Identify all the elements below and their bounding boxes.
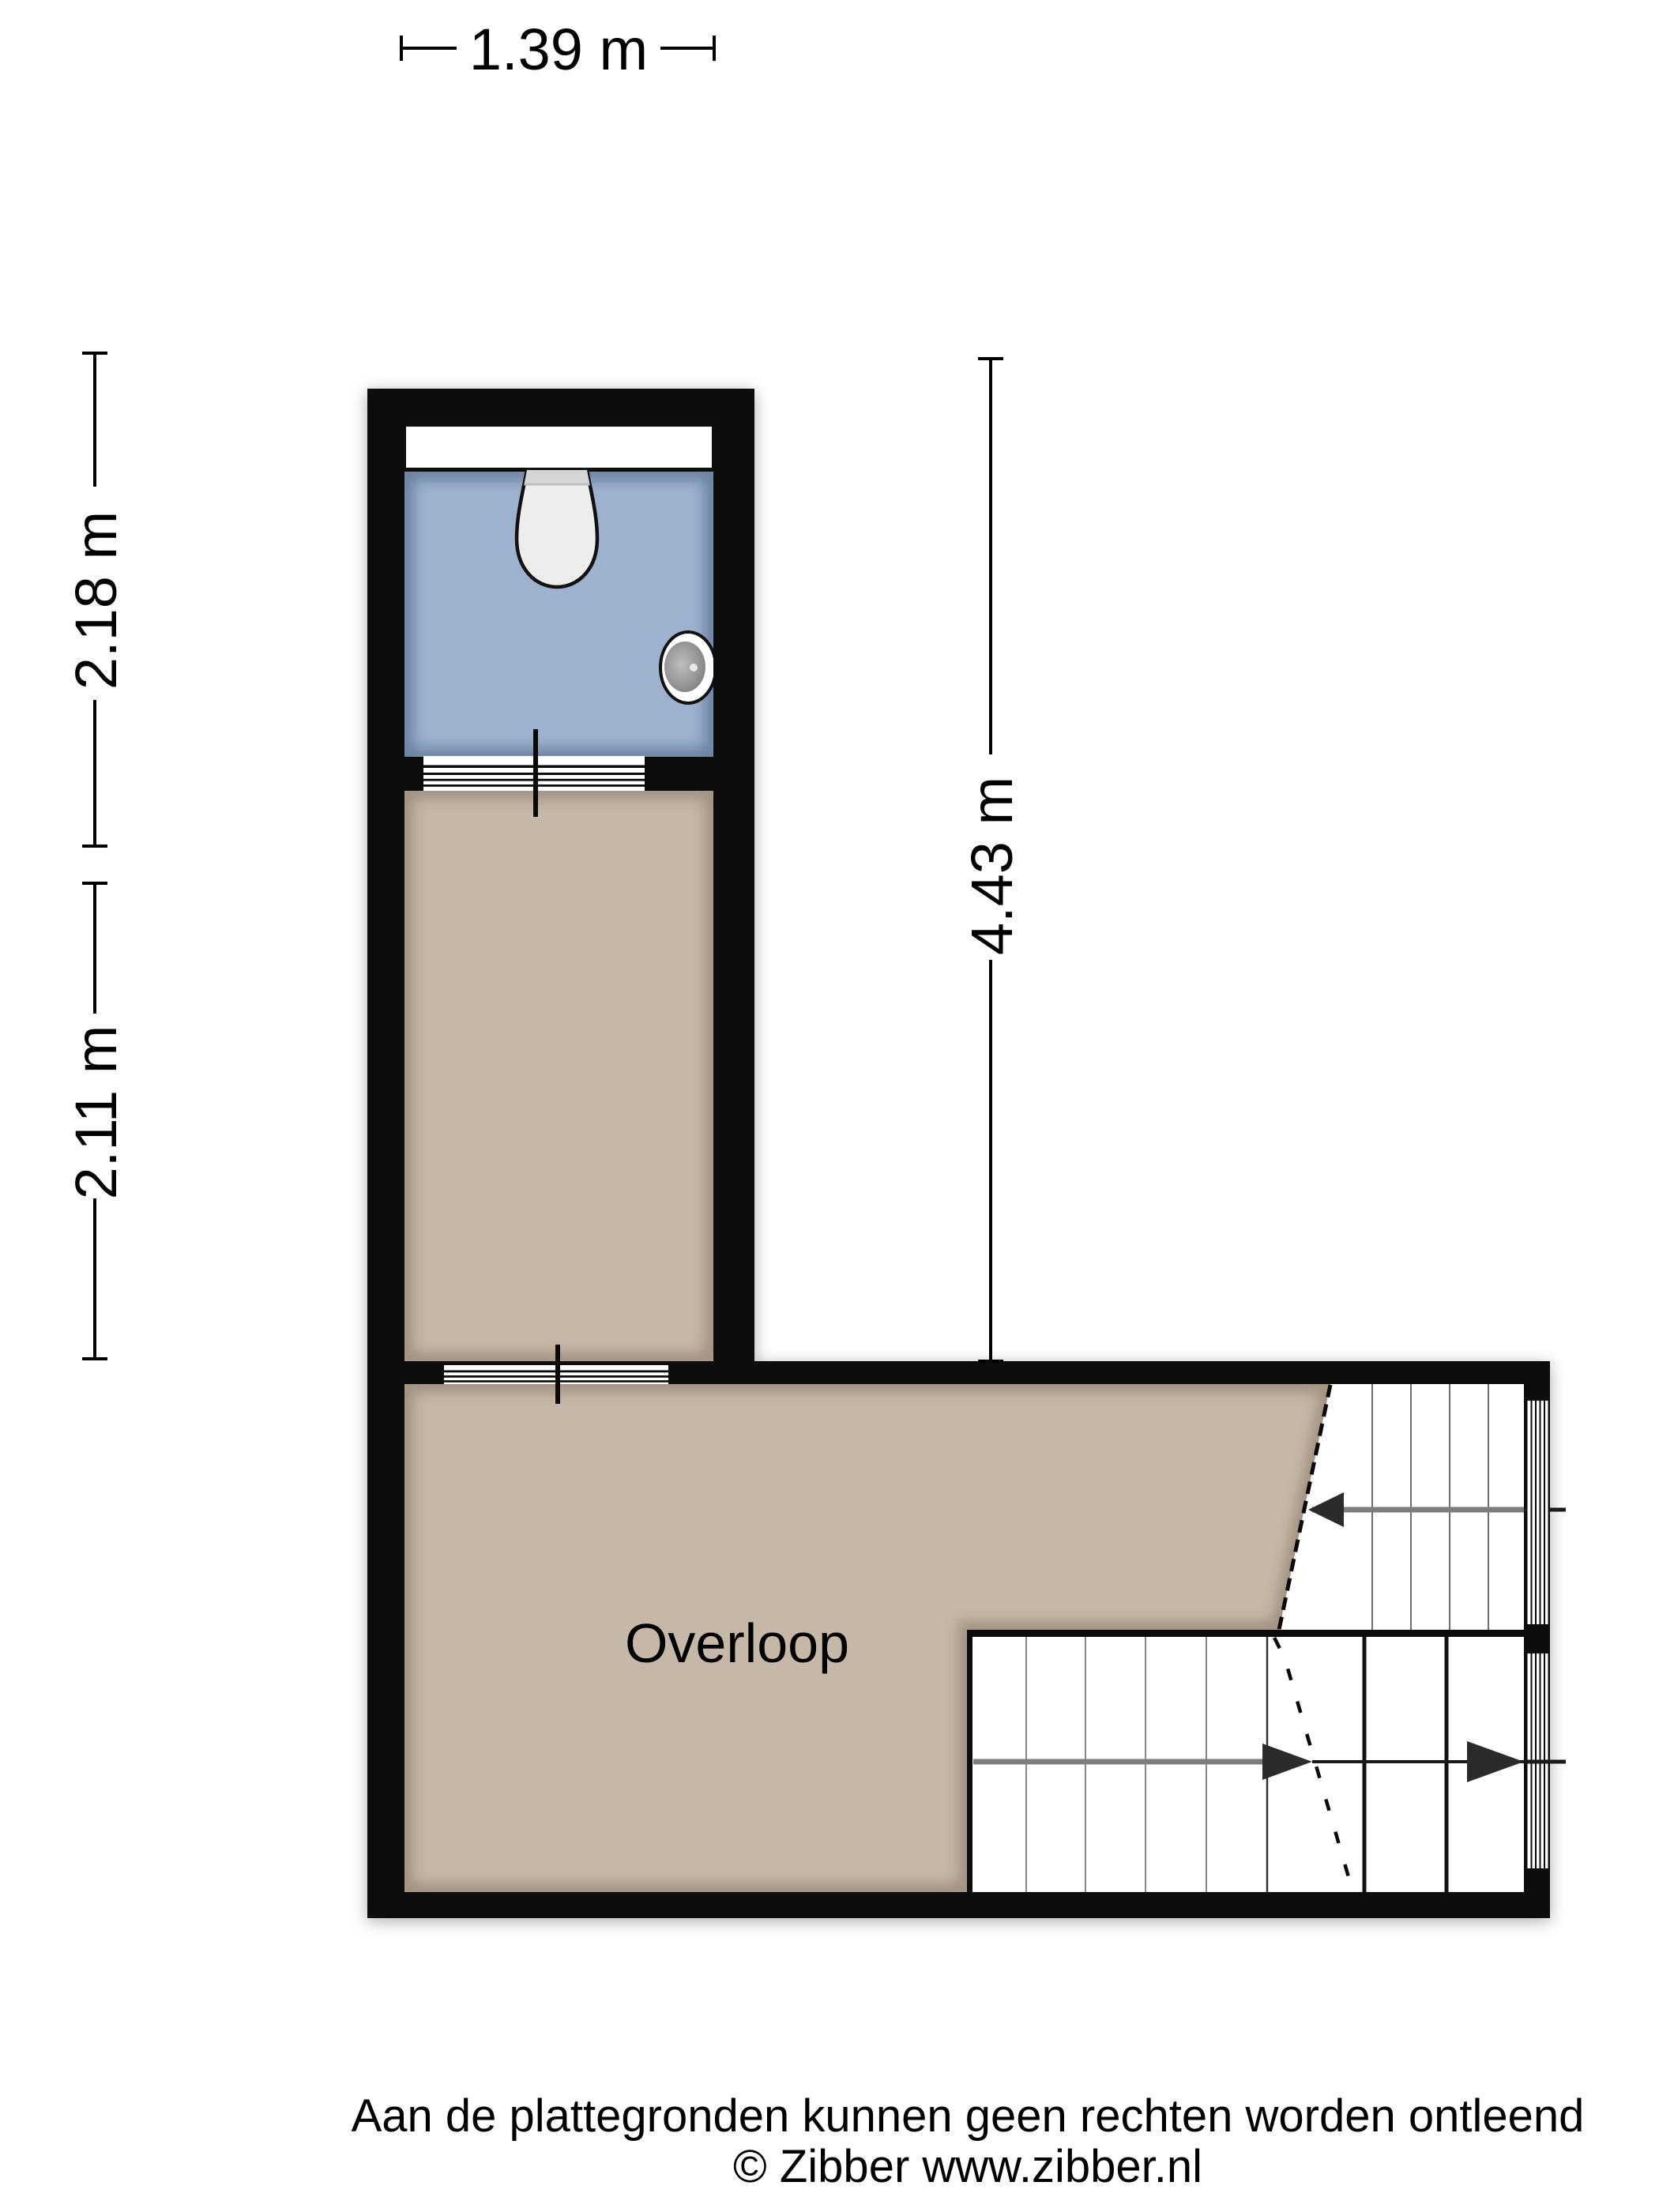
svg-text:Overloop: Overloop <box>625 1612 849 1674</box>
svg-text:4.43 m: 4.43 m <box>959 777 1025 955</box>
svg-text:1.39 m: 1.39 m <box>469 17 648 82</box>
svg-text:2.18 m: 2.18 m <box>63 511 129 690</box>
svg-text:Aan de plattegronden kunnen ge: Aan de plattegronden kunnen geen rechten… <box>352 2090 1585 2142</box>
svg-text:2.11 m: 2.11 m <box>63 1025 129 1200</box>
svg-text:© Zibber www.zibber.nl: © Zibber www.zibber.nl <box>733 2141 1202 2192</box>
